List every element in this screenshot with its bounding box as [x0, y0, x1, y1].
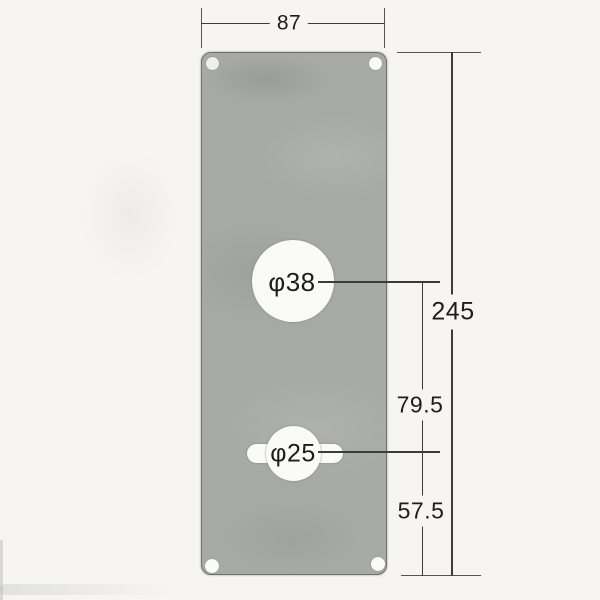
- scan-streak-left-edge: [0, 540, 3, 600]
- extension-line-height-bottom: [401, 575, 481, 576]
- height-dimension-label: 245: [429, 295, 476, 330]
- extension-line-width-left: [201, 8, 202, 48]
- extension-line-width-right: [384, 8, 385, 48]
- width-dimension-label: 87: [270, 13, 308, 34]
- corner-hole-bottom-left: [205, 559, 219, 573]
- corner-hole-top-right: [369, 57, 382, 70]
- scan-smudge: [80, 150, 180, 280]
- extension-line-height-top: [397, 52, 481, 53]
- small-hole-diameter-label: φ25: [270, 442, 316, 467]
- scan-streak-bottom-left: [0, 584, 170, 595]
- large-hole-diameter-label: φ38: [268, 269, 315, 295]
- corner-hole-bottom-right: [371, 557, 385, 571]
- dimension-line-hole-spacing: [422, 282, 424, 452]
- bottom-offset-dimension-label: 57.5: [395, 496, 448, 527]
- drawing-canvas: 87 245 79.5 57.5 φ38 φ25: [0, 0, 600, 600]
- hole-spacing-dimension-label: 79.5: [394, 390, 447, 421]
- corner-hole-top-left: [206, 57, 219, 70]
